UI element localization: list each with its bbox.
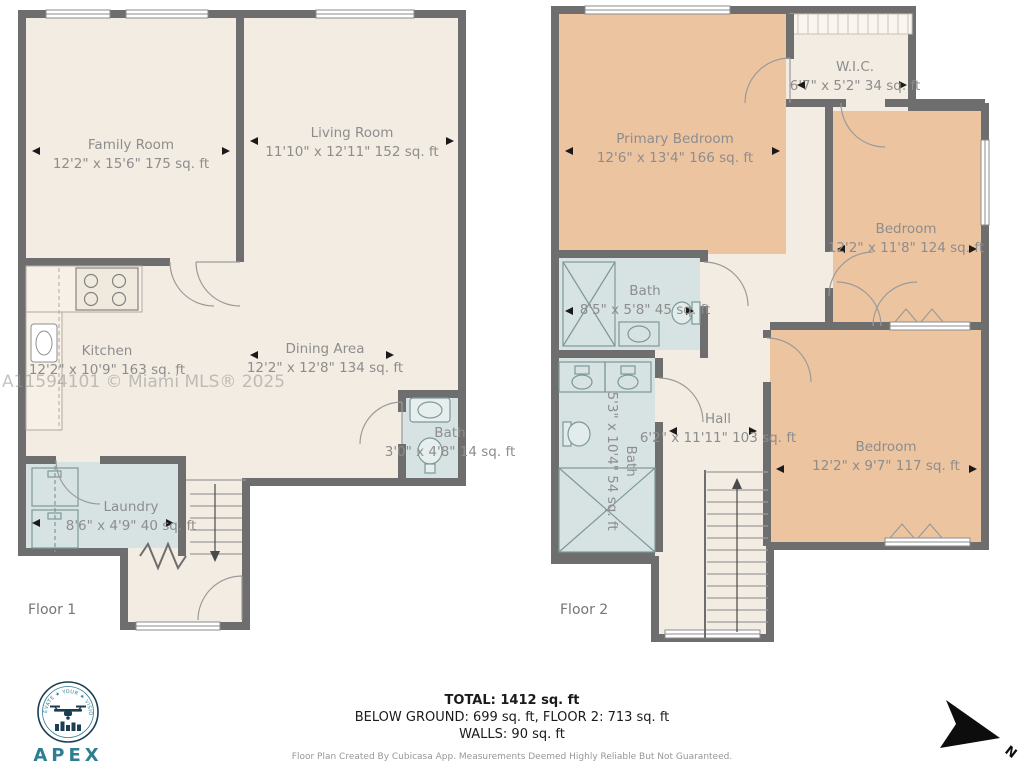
floor1-label: Floor 1 [28, 602, 76, 618]
floor2-plan [545, 0, 1015, 660]
disclaimer-text: Floor Plan Created By Cubicasa App. Meas… [0, 752, 1024, 762]
bedroom-bottom-floor [770, 330, 981, 542]
walls-sqft: WALLS: 90 sq. ft [0, 727, 1024, 742]
bath-left-floor [559, 358, 655, 552]
floorplan-page: Family Room 12'2" x 15'6" 175 sq. ft Liv… [0, 0, 1024, 768]
apex-logo: ELEVATE ★ YOUR ★ VISION APEX — AUDACITY … [20, 680, 116, 768]
floor-breakdown: BELOW GROUND: 699 sq. ft, FLOOR 2: 713 s… [0, 710, 1024, 725]
primary-bedroom-floor [559, 14, 786, 254]
kitchen-sink-icon [31, 324, 57, 362]
toilet-icon [692, 302, 700, 324]
apex-badge-icon: ELEVATE ★ YOUR ★ VISION [36, 680, 100, 744]
toilet-icon [418, 438, 442, 464]
floor1-plan [0, 0, 500, 660]
bedroom-top-floor [833, 111, 981, 322]
laundry-floor [26, 462, 178, 548]
stove-icon [76, 268, 138, 310]
wic-closet-rail [790, 14, 912, 34]
logo-brand-text: APEX [20, 745, 116, 766]
floor2-label: Floor 2 [560, 602, 608, 618]
footer-summary: TOTAL: 1412 sq. ft BELOW GROUND: 699 sq.… [0, 693, 1024, 762]
north-label: N [1002, 743, 1020, 758]
total-sqft: TOTAL: 1412 sq. ft [0, 693, 1024, 708]
north-arrow-icon: N [938, 696, 1024, 758]
